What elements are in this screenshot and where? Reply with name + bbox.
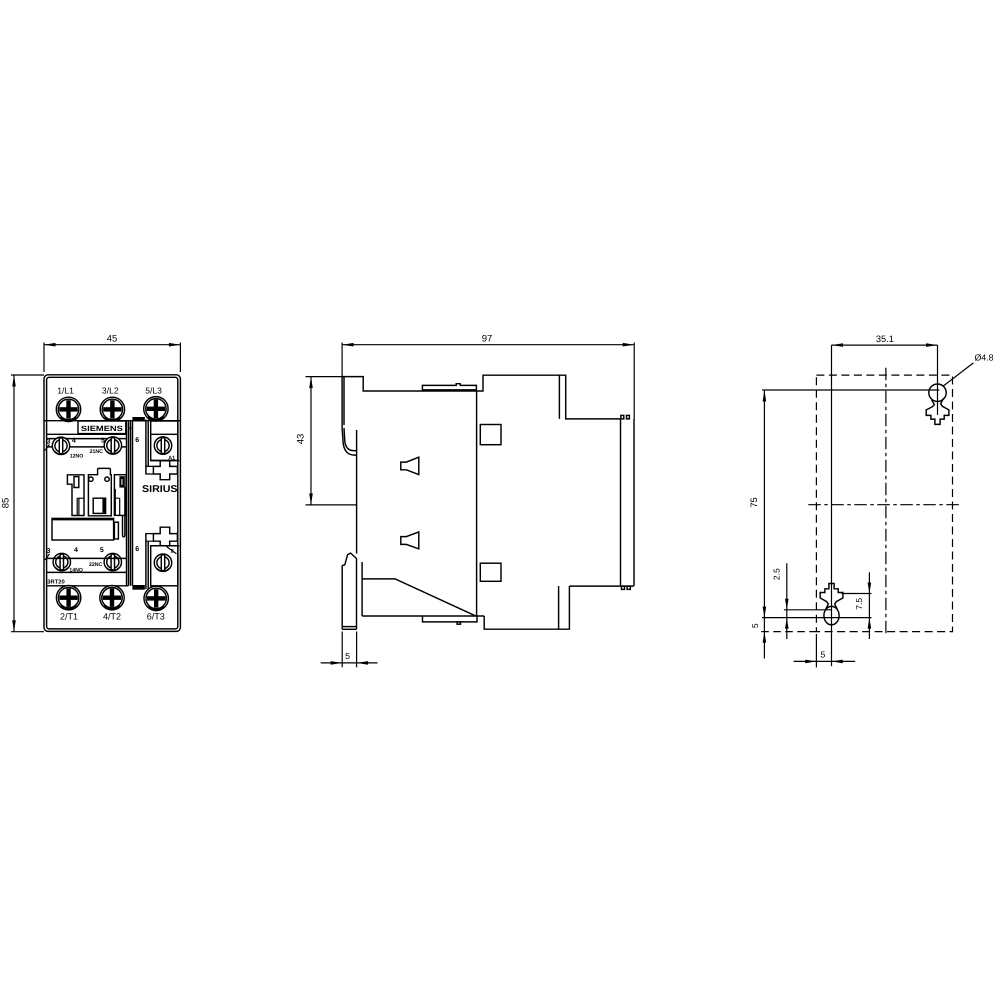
svg-text:85: 85 <box>1 498 12 509</box>
svg-text:6/T3: 6/T3 <box>147 611 165 621</box>
svg-text:5: 5 <box>820 650 825 660</box>
svg-text:5: 5 <box>750 623 760 628</box>
svg-text:3: 3 <box>47 548 51 555</box>
svg-text:SIEMENS: SIEMENS <box>81 424 123 433</box>
svg-text:22NC: 22NC <box>89 562 103 568</box>
svg-text:75: 75 <box>749 497 759 507</box>
svg-text:Ø4.8: Ø4.8 <box>974 353 993 363</box>
svg-text:35.1: 35.1 <box>876 334 894 344</box>
svg-text:2/T1: 2/T1 <box>60 611 78 621</box>
svg-text:SIRIUS: SIRIUS <box>142 484 178 495</box>
svg-text:1/L1: 1/L1 <box>57 386 74 396</box>
svg-text:5/L3: 5/L3 <box>145 386 162 396</box>
svg-text:4/T2: 4/T2 <box>103 611 121 621</box>
svg-text:6: 6 <box>135 546 139 553</box>
svg-text:2: 2 <box>171 549 174 555</box>
svg-text:3RT20: 3RT20 <box>47 579 64 586</box>
svg-text:5: 5 <box>345 651 350 661</box>
svg-text:3/L2: 3/L2 <box>102 386 119 396</box>
svg-text:6: 6 <box>135 437 139 444</box>
svg-text:12NO: 12NO <box>70 453 84 459</box>
svg-text:97: 97 <box>482 334 493 345</box>
svg-text:5: 5 <box>100 547 104 554</box>
svg-text:4: 4 <box>72 438 76 445</box>
svg-text:45: 45 <box>107 334 118 345</box>
svg-text:21NC: 21NC <box>90 449 104 455</box>
svg-text:4: 4 <box>74 547 78 554</box>
svg-text:3: 3 <box>47 438 51 445</box>
svg-text:7.5: 7.5 <box>854 598 864 610</box>
svg-text:2.5: 2.5 <box>771 568 781 580</box>
svg-text:43: 43 <box>296 434 307 445</box>
